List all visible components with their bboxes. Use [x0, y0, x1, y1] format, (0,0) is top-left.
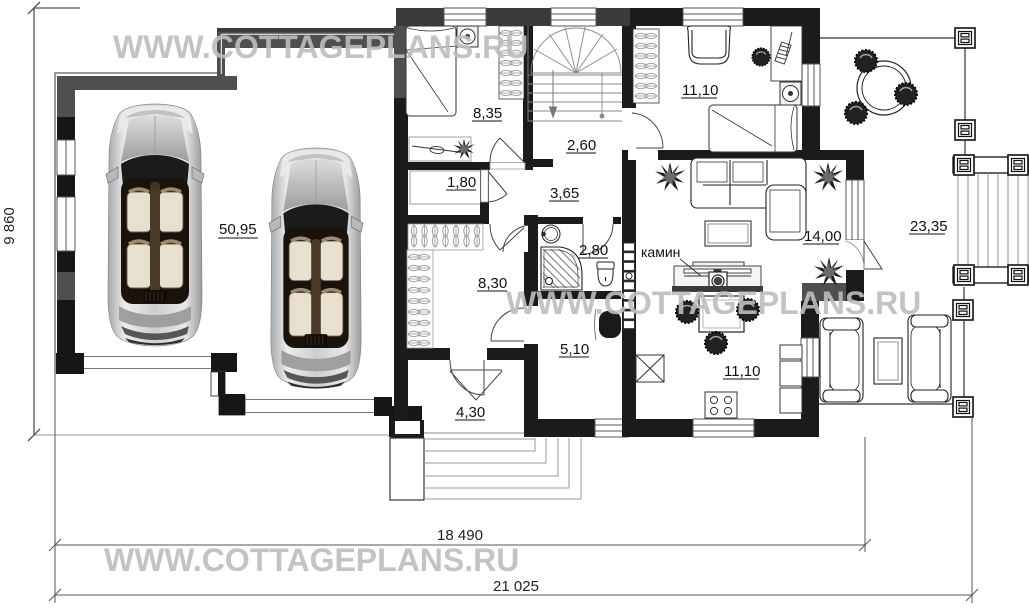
svg-text:21 025: 21 025 [493, 578, 539, 595]
svg-text:5,10: 5,10 [560, 341, 589, 358]
svg-text:9 860: 9 860 [1, 207, 18, 245]
svg-text:WWW.COTTAGEPLANS.RU: WWW.COTTAGEPLANS.RU [104, 542, 519, 578]
svg-text:8,35: 8,35 [473, 105, 502, 122]
svg-text:11,10: 11,10 [724, 363, 760, 380]
svg-text:1,80: 1,80 [447, 174, 476, 191]
svg-text:2,60: 2,60 [567, 137, 596, 154]
svg-text:WWW.COTTAGEPLANS.RU: WWW.COTTAGEPLANS.RU [113, 29, 528, 65]
svg-text:2,80: 2,80 [579, 242, 608, 259]
svg-text:11,10: 11,10 [682, 82, 718, 99]
svg-text:23,35: 23,35 [910, 218, 948, 235]
svg-text:3,65: 3,65 [550, 185, 579, 202]
svg-text:камин: камин [641, 244, 680, 260]
svg-text:8,30: 8,30 [478, 275, 507, 292]
svg-text:50,95: 50,95 [219, 221, 257, 238]
svg-text:WWW.COTTAGEPLANS.RU: WWW.COTTAGEPLANS.RU [506, 285, 921, 321]
svg-text:4,30: 4,30 [456, 404, 485, 421]
svg-text:14,00: 14,00 [804, 228, 842, 245]
